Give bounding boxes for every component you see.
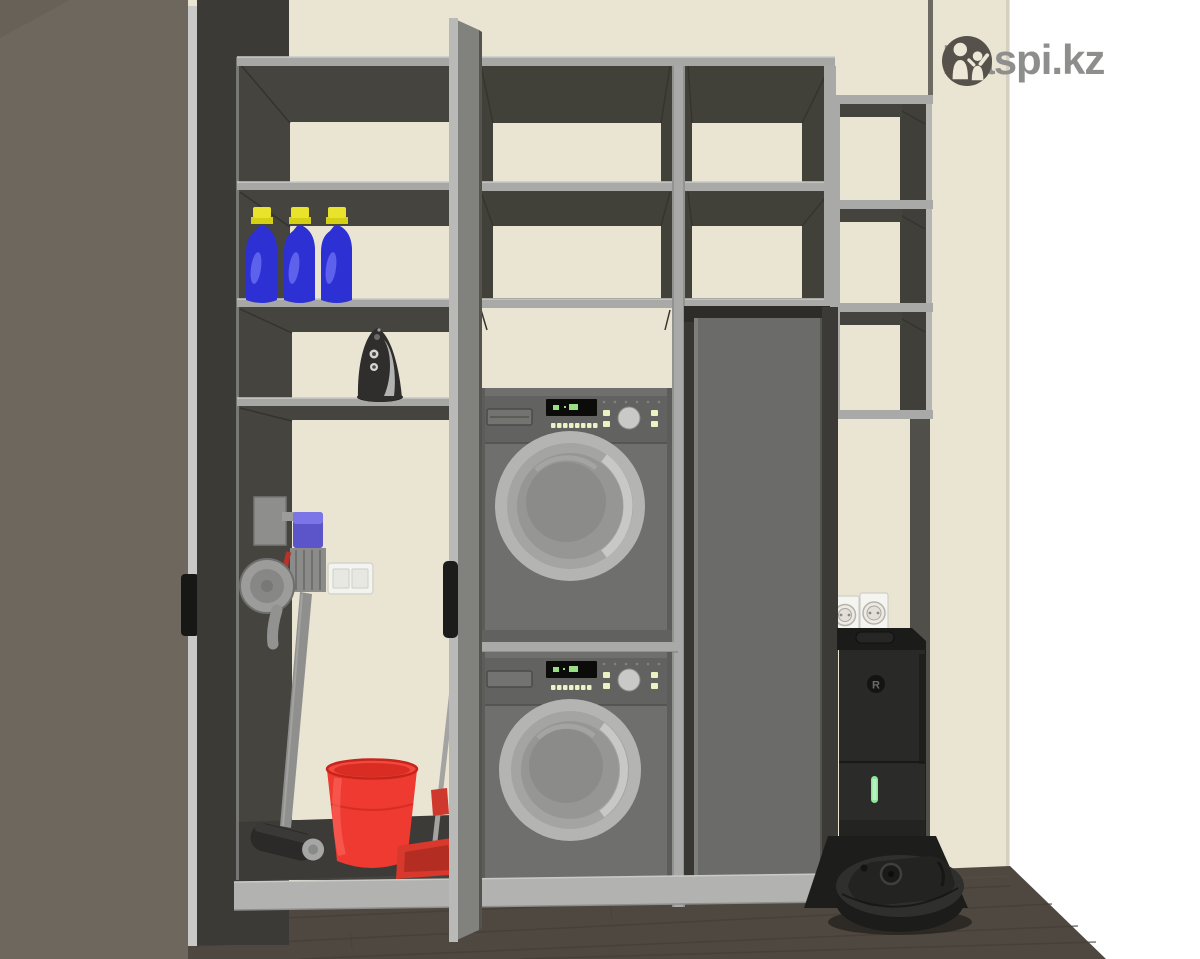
door-edge <box>449 18 458 942</box>
open-back-wall-patch <box>493 123 661 182</box>
washer-drum-door <box>495 431 645 581</box>
dryer-knob <box>618 669 640 691</box>
wall-edge-line <box>928 0 933 96</box>
light-switch <box>328 563 373 594</box>
robot-vacuum <box>828 855 972 935</box>
machine-shelf <box>478 642 678 652</box>
dryer-machine <box>480 652 672 878</box>
center-divider <box>672 57 685 907</box>
brand-logo: Kaspi.kz <box>942 36 1104 84</box>
washing-machine <box>480 388 672 642</box>
open-back-wall-patch <box>290 122 452 182</box>
vacuum-wall-mount <box>254 497 286 545</box>
left-wardrobe <box>236 57 455 881</box>
open-back-wall-patch <box>493 226 661 298</box>
wall-corner-line <box>1006 0 1009 868</box>
door-edge <box>188 6 197 946</box>
cabinet-side-panel <box>822 307 838 877</box>
detergent-bottles <box>246 207 352 303</box>
washer-knob <box>618 407 640 429</box>
cabinet-top-rail <box>237 57 835 66</box>
laundry-room-render: R <box>0 0 1200 959</box>
tall-cabinet-door <box>694 318 822 876</box>
irobot-logo-letter: R <box>872 680 880 692</box>
middle-door-handle <box>443 561 458 638</box>
open-back-wall-patch <box>487 330 665 390</box>
left-door-handle <box>181 574 199 636</box>
open-back-wall-patch <box>692 226 802 298</box>
dryer-drum-door <box>499 699 641 841</box>
left-open-door <box>0 0 199 959</box>
scene: R Kaspi.kz <box>0 0 1200 959</box>
dryer-detergent-drawer <box>487 671 532 687</box>
tall-cabinet <box>684 306 830 878</box>
open-back-wall-patch <box>692 123 802 182</box>
kaspi-logo-icon <box>942 36 992 86</box>
